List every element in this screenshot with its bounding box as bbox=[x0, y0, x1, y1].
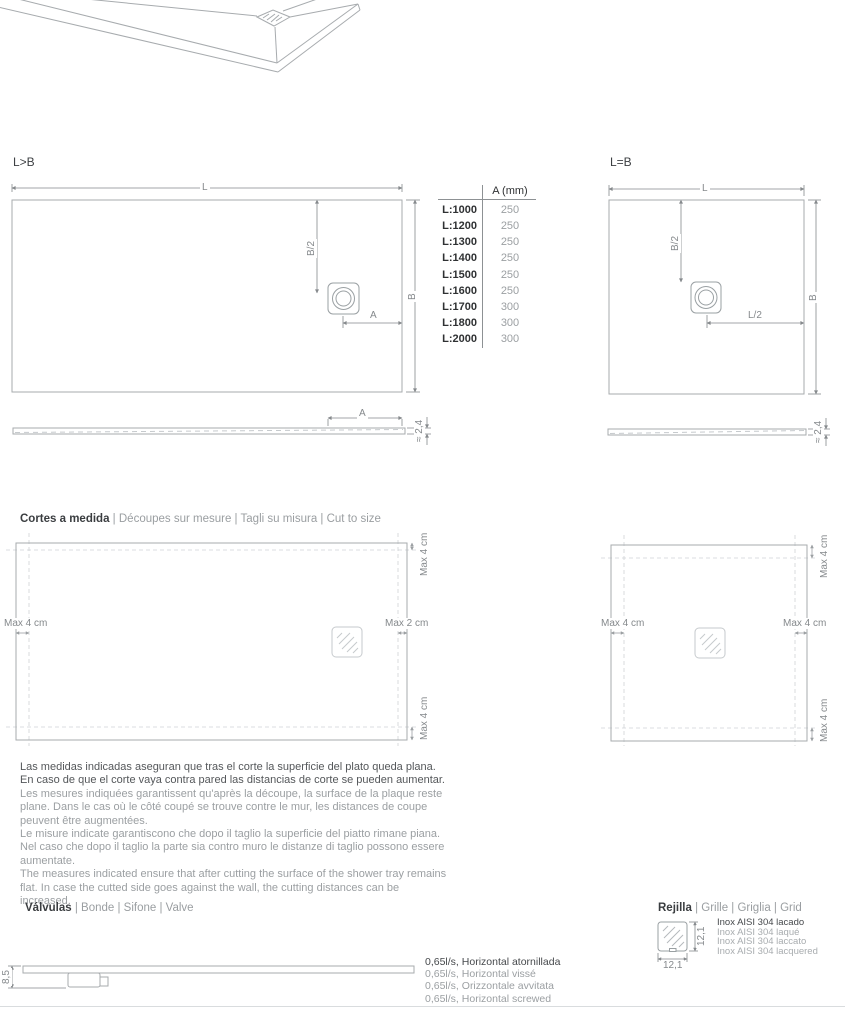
heading-primary: Cortes a medida bbox=[20, 513, 109, 525]
table-row: L:1200250 bbox=[438, 218, 538, 234]
grid-material-en: Inox AISI 304 lacquered bbox=[717, 947, 845, 957]
rect-tray-side-profile: A ≈ 2,4 bbox=[0, 405, 445, 460]
grid-dimension-drawing: 12,1 12,1 bbox=[650, 915, 710, 970]
heading-secondary: | Grille | Griglia | Grid bbox=[692, 902, 802, 914]
table-row: L:1600250 bbox=[438, 283, 538, 299]
square-tray-plan-diagram: L B B/2 L/2 bbox=[600, 180, 845, 395]
dim-half-length-label: L/2 bbox=[746, 310, 764, 321]
grid-width-label: 12,1 bbox=[661, 960, 684, 971]
table-header-a: A (mm) bbox=[484, 185, 536, 197]
table-row: L:1700300 bbox=[438, 299, 538, 315]
grid-materials: Inox AISI 304 lacado Inox AISI 304 laqué… bbox=[717, 918, 845, 956]
dim-half-width-label: B/2 bbox=[306, 239, 317, 258]
drain-icon bbox=[691, 282, 721, 313]
dim-length-label: L bbox=[700, 183, 710, 194]
table-row: L:1800300 bbox=[438, 315, 538, 331]
square-tray-side-profile: ≈ 2,4 bbox=[600, 405, 845, 460]
cut-notes: Las medidas indicadas aseguran que tras … bbox=[20, 761, 452, 908]
cut-top-label: Max 4 cm bbox=[819, 533, 830, 580]
cut-right-label: Max 4 cm bbox=[781, 618, 828, 629]
cut-left-label: Max 4 cm bbox=[599, 618, 646, 629]
dim-width-label: B bbox=[407, 291, 418, 302]
dim-length-label: L bbox=[200, 182, 210, 193]
valve-spec-en: 0,65l/s, Horizontal screwed bbox=[425, 993, 635, 1005]
note-es: Las medidas indicadas aseguran que tras … bbox=[20, 761, 452, 788]
cut-bottom-label: Max 4 cm bbox=[819, 697, 830, 744]
cut-right-label: Max 2 cm bbox=[383, 618, 430, 629]
table-row: L:2000300 bbox=[438, 331, 538, 347]
drain-grate-icon bbox=[332, 627, 362, 657]
cut-top-label: Max 4 cm bbox=[419, 531, 430, 578]
table-row: L:1400250 bbox=[438, 250, 538, 266]
dim-half-width-label: B/2 bbox=[670, 234, 681, 253]
dim-drain-offset-label: A bbox=[368, 310, 379, 321]
valve-profile-drawing: 8,5 bbox=[0, 938, 420, 998]
rect-tray-plan-diagram: L B B/2 A bbox=[0, 180, 445, 395]
valve-spec-es: 0,65l/s, Horizontal atornillada bbox=[425, 956, 635, 968]
cut-left-label: Max 4 cm bbox=[2, 618, 49, 629]
variant-square-label: L=B bbox=[610, 155, 632, 169]
variant-rect-label: L>B bbox=[13, 155, 35, 169]
heading-secondary: | Découpes sur mesure | Tagli su misura … bbox=[109, 513, 380, 525]
valve-spec-fr: 0,65l/s, Horizontal vissé bbox=[425, 968, 635, 980]
cut-to-size-heading: Cortes a medida | Découpes sur mesure | … bbox=[20, 513, 381, 525]
valves-heading: Válvulas | Bonde | Sifone | Valve bbox=[25, 902, 194, 914]
dim-drain-offset-label: A bbox=[357, 408, 368, 419]
table-header-rule bbox=[438, 199, 536, 200]
valve-spec-it: 0,65l/s, Orizzontale avvitata bbox=[425, 980, 635, 992]
note-fr: Les mesures indiquées garantissent qu'ap… bbox=[20, 788, 452, 828]
table-row: L:1500250 bbox=[438, 267, 538, 283]
note-it: Le misure indicate garantiscono che dopo… bbox=[20, 828, 452, 868]
table-row: L:1000250 bbox=[438, 202, 538, 218]
thickness-label: ≈ 2,4 bbox=[813, 419, 824, 445]
grid-height-label: 12,1 bbox=[696, 925, 707, 948]
thickness-label: ≈ 2,4 bbox=[414, 418, 425, 444]
drain-icon bbox=[328, 283, 359, 314]
heading-primary: Válvulas bbox=[25, 902, 72, 914]
heading-primary: Rejilla bbox=[658, 902, 692, 914]
drain-grate-3d-icon bbox=[257, 10, 290, 26]
grid-grate-icon bbox=[658, 922, 687, 952]
spec-sheet-page: L>B L=B L B B/2 A bbox=[0, 0, 845, 1020]
cut-bottom-label: Max 4 cm bbox=[419, 695, 430, 742]
dim-width-label: B bbox=[808, 292, 819, 303]
valve-specs: 0,65l/s, Horizontal atornillada 0,65l/s,… bbox=[425, 956, 635, 1005]
siphon-icon bbox=[68, 973, 108, 987]
shower-tray-3d-drawing bbox=[0, 0, 380, 90]
rect-cut-diagram: Max 4 cm Max 2 cm Max 4 cm Max 4 cm bbox=[0, 530, 445, 748]
square-cut-diagram: Max 4 cm Max 4 cm Max 4 cm Max 4 cm bbox=[595, 530, 845, 748]
grid-heading: Rejilla | Grille | Griglia | Grid bbox=[658, 902, 802, 914]
drain-grate-icon bbox=[695, 628, 725, 658]
bottom-divider bbox=[0, 1006, 845, 1007]
table-row: L:1300250 bbox=[438, 234, 538, 250]
valve-height-label: 8,5 bbox=[1, 968, 12, 986]
heading-secondary: | Bonde | Sifone | Valve bbox=[72, 902, 194, 914]
